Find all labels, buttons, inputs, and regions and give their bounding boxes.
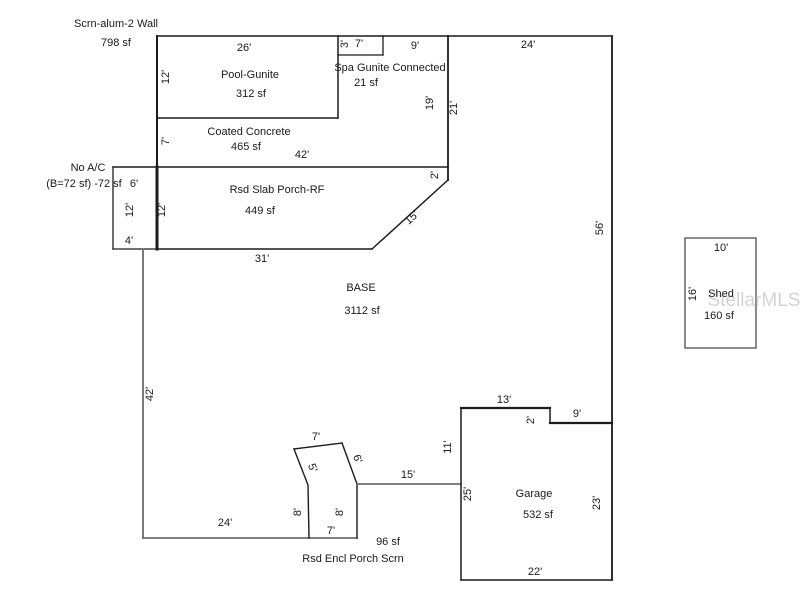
dimension-label: 4' <box>125 235 133 247</box>
slab-porch-size: 449 sf <box>245 205 276 217</box>
pool-size: 312 sf <box>236 88 267 100</box>
dimension-label: 3' <box>339 40 351 48</box>
dimension-label: 26' <box>237 42 251 54</box>
shed-title: Shed <box>708 288 734 300</box>
dimension-label: 12' <box>160 70 172 84</box>
dimension-label: 7' <box>355 38 363 50</box>
spa-title: Spa Gunite Connected <box>334 62 445 74</box>
dimension-label: 56' <box>594 221 606 235</box>
dimension-label: 7' <box>327 525 335 537</box>
dimension-label: 42' <box>295 149 309 161</box>
dimension-label: 12' <box>124 203 136 217</box>
encl-porch-left-wall <box>294 449 309 538</box>
dimension-label: 25' <box>462 487 474 501</box>
dimension-label: 24' <box>521 39 535 51</box>
dimension-label: 7' <box>160 137 172 145</box>
slab-porch-title: Rsd Slab Porch-RF <box>230 184 325 196</box>
dimension-label: 10' <box>714 242 728 254</box>
scrn-wall-size: 798 sf <box>101 37 132 49</box>
dimension-label: 2' <box>525 416 537 424</box>
pool-title: Pool-Gunite <box>221 69 279 81</box>
dimension-label: 9' <box>411 40 419 52</box>
dimension-label: 5' <box>305 462 319 474</box>
dimension-label: 13' <box>497 394 511 406</box>
garage-title: Garage <box>516 488 553 500</box>
dimension-label: 7' <box>312 431 320 443</box>
dimension-label: 11' <box>442 440 454 454</box>
coated-concrete-size: 465 sf <box>231 141 262 153</box>
dimension-label: 15' <box>403 209 422 228</box>
dimension-label: 31' <box>255 253 269 265</box>
encl-porch-title: Rsd Encl Porch Scrn <box>302 553 403 565</box>
dimension-label: 2' <box>429 171 441 179</box>
encl-porch-size: 96 sf <box>376 536 401 548</box>
dimension-label: 21' <box>448 101 460 115</box>
encl-porch-top-wall <box>294 443 342 449</box>
sketch-canvas: StellarMLSScrn-alum-2 Wall798 sf26'12'Po… <box>0 0 800 600</box>
base-title: BASE <box>346 282 375 294</box>
dimension-label: 42' <box>144 387 156 401</box>
scrn-wall-title: Scrn-alum-2 Wall <box>74 18 158 30</box>
coated-concrete-title: Coated Concrete <box>207 126 290 138</box>
dimension-label: 12' <box>156 203 168 217</box>
dimension-label: 15' <box>401 469 415 481</box>
floor-plan-svg: StellarMLSScrn-alum-2 Wall798 sf26'12'Po… <box>0 0 800 600</box>
base-size: 3112 sf <box>344 305 380 317</box>
dimension-label: 8' <box>334 508 346 516</box>
dimension-label: 22' <box>528 566 542 578</box>
dimension-label: 24' <box>218 517 232 529</box>
dimension-label: 23' <box>591 496 603 510</box>
dimension-label: 19' <box>424 96 436 110</box>
dimension-label: 9' <box>573 408 581 420</box>
dimension-label: 16' <box>687 287 699 301</box>
noac-title: No A/C <box>71 162 106 174</box>
spa-size: 21 sf <box>354 77 379 89</box>
dimension-label: 6' <box>130 178 138 190</box>
noac-note: (B=72 sf) -72 sf <box>46 178 122 190</box>
dimension-label: 8' <box>292 508 304 516</box>
garage-size: 532 sf <box>523 509 554 521</box>
dimension-label: 6' <box>350 453 364 465</box>
shed-size: 160 sf <box>704 310 735 322</box>
